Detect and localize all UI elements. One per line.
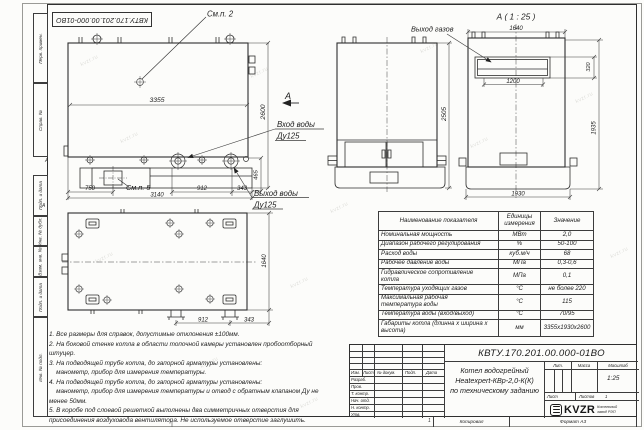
- note-line: манометр, прибор для измерения температу…: [49, 368, 341, 378]
- label-water-outlet: Выход воды: [254, 189, 298, 198]
- note-line: штуцер.: [49, 349, 341, 359]
- dim-detail-height: 1935: [592, 121, 598, 135]
- scale-label: Масштаб: [597, 363, 639, 368]
- param-name: Номинальная мощность: [379, 231, 499, 241]
- detail-a-title: А ( 1 : 25 ): [496, 12, 536, 22]
- param-value: 3355х1930х2600: [541, 320, 594, 337]
- bottom-flanges: [85, 152, 249, 170]
- table-row: Габариты котла (длинна х ширина х высота…: [379, 320, 594, 337]
- param-units: МПа: [499, 259, 541, 269]
- technical-notes: 1. Все размеры для справок, допустимые о…: [49, 330, 341, 425]
- param-name: Рабочее давление воды: [379, 259, 499, 269]
- drawing-sheet: kvzr.ru kvzr.ru kvzr.ru kvzr.ru kvzr.ru …: [0, 0, 644, 430]
- note-line: 1. Все размеры для справок, допустимые о…: [49, 330, 341, 340]
- sig-row-utv: Утв.: [351, 412, 361, 417]
- param-value: 2,0: [541, 231, 594, 241]
- table-row: Температура уходящих газов°Сне более 220: [379, 285, 594, 295]
- param-units: °С: [499, 294, 541, 310]
- detail-a-view: [459, 24, 577, 198]
- mass-label: Масса: [571, 363, 597, 368]
- dim-top-343: 343: [244, 318, 255, 324]
- mount-points: [74, 218, 215, 305]
- dim-base-length: 3140: [150, 193, 164, 199]
- dim-front-912: 912: [197, 186, 208, 192]
- param-name: Температура уходящих газов: [379, 285, 499, 295]
- kvzr-logo-subtext: Котельный завод РЭП: [597, 405, 617, 414]
- label-see-p2: См.п. 2: [207, 10, 234, 19]
- dim-front-height: 2600: [260, 104, 267, 120]
- doc-code-cell: КВТУ.170.201.00.000-01ВО: [444, 345, 638, 362]
- copied-cell: Копировал: [433, 417, 510, 427]
- dim-outlet-height: 465: [254, 169, 260, 179]
- note-line: присоединения воздуховода вентилятора. Н…: [49, 416, 341, 426]
- sig-header-list: Лист: [363, 370, 374, 375]
- sig-row-nkontr: Н. контр.: [351, 405, 370, 410]
- param-value: 115: [541, 294, 594, 310]
- param-value: не более 220: [541, 285, 594, 295]
- param-units: °С: [499, 285, 541, 295]
- kvzr-logo-text: KVZR: [564, 404, 595, 416]
- lit-label: Лит.: [545, 363, 571, 368]
- param-value: 68: [541, 250, 594, 260]
- product-name-line1: Котел водогрейный: [460, 366, 528, 375]
- sig-row-tkontr: Т. контр.: [351, 391, 369, 396]
- product-name-line2: Heatexpert-КВр-2,0-К(К): [455, 376, 534, 385]
- detail-a-dimensions: [447, 29, 603, 200]
- note-line: 2. На боковой стенке котла в области топ…: [49, 340, 341, 350]
- title-block: КВТУ.170.201.00.000-01ВО Изм. Лист № док…: [349, 344, 637, 417]
- zone-mark-bottom: 1: [428, 418, 431, 424]
- company-logo: KVZR Котельный завод РЭП: [547, 401, 638, 418]
- kvzr-logo-icon: [550, 404, 562, 416]
- col-header-name: Наименование показателя: [379, 212, 499, 231]
- format-cell: Формат А3: [510, 417, 637, 427]
- logo-sub-line2: завод РЭП: [597, 410, 617, 415]
- param-units: МПа: [499, 269, 541, 285]
- label-water-inlet-dn: Ду125: [276, 132, 300, 141]
- scale-value: 1:25: [607, 375, 619, 382]
- section-mark-a: А: [284, 91, 291, 101]
- dim-front-length: 3355: [149, 97, 164, 104]
- table-row: Диапазон рабочего регулирования%50-100: [379, 240, 594, 250]
- logo-sub-line1: Котельный: [597, 405, 617, 410]
- dim-duct-width: 1200: [506, 79, 520, 85]
- label-water-outlet-dn: Ду125: [253, 200, 277, 209]
- sheets-label: Листов: [579, 394, 603, 399]
- sig-row-prov: Пров.: [351, 384, 362, 389]
- param-units: °С: [499, 310, 541, 320]
- product-name-line3: по техническому заданию: [450, 386, 539, 395]
- param-value: 0,3-0,6: [541, 259, 594, 269]
- dim-side-height: 2505: [441, 107, 448, 123]
- table-row: Гидравлическое сопротивление котлаМПа0,1: [379, 269, 594, 285]
- sheet-label: Лист: [547, 394, 567, 399]
- param-name: Диапазон рабочего регулирования: [379, 240, 499, 250]
- label-water-inlet: Вход воды: [277, 120, 315, 129]
- param-units: МВт: [499, 231, 541, 241]
- note-line: манометр, прибор для измерения температу…: [49, 387, 341, 397]
- sig-header-data: Дата: [426, 370, 437, 375]
- dim-top-width: 1640: [262, 254, 268, 268]
- parameters-table: Наименование показателя Единицы измерени…: [378, 211, 593, 337]
- param-name: Расход воды: [379, 250, 499, 260]
- table-row: Температура воды (вход/выход)°С70/95: [379, 310, 594, 320]
- label-see-p5: См.п. 5: [126, 183, 151, 192]
- label-gas-outlet: Выход газов: [411, 25, 454, 34]
- table-row: Рабочее давление водыМПа0,3-0,6: [379, 259, 594, 269]
- format-label: Формат А3: [560, 420, 586, 425]
- table-row: Расход водыкуб.м/ч68: [379, 250, 594, 260]
- dim-top-912: 912: [198, 318, 209, 324]
- col-header-units: Единицы измерения: [499, 212, 541, 231]
- table-row: Номинальная мощностьМВт2,0: [379, 231, 594, 241]
- param-name: Максимальная рабочая температура воды: [379, 294, 499, 310]
- param-value: 0,1: [541, 269, 594, 285]
- signature-table: Изм. Лист № докум. Подп. Дата Разраб. Пр…: [350, 345, 444, 418]
- param-units: куб.м/ч: [499, 250, 541, 260]
- side-view: [328, 37, 446, 192]
- param-name: Температура воды (вход/выход): [379, 310, 499, 320]
- param-name: Габариты котла (длинна х ширина х высота…: [379, 320, 499, 337]
- note-line: 4. На подводящей трубе котла, до запорно…: [49, 378, 341, 388]
- param-units: %: [499, 240, 541, 250]
- param-value: 70/95: [541, 310, 594, 320]
- dim-detail-base: 1930: [511, 192, 525, 198]
- dim-base-left: 750: [85, 186, 96, 192]
- top-view: [62, 209, 256, 320]
- sig-header-dokum: № докум.: [377, 370, 395, 375]
- sig-header-podp: Подп.: [405, 370, 416, 375]
- dim-front-343: 343: [237, 186, 248, 192]
- dim-duct-height: 320: [586, 61, 592, 71]
- note-line: менее 50мм.: [49, 397, 341, 407]
- param-units: мм: [499, 320, 541, 337]
- sig-row-razrab: Разраб.: [351, 377, 366, 382]
- table-row: Максимальная рабочая температура воды°С1…: [379, 294, 594, 310]
- dim-detail-width-top: 1640: [509, 26, 523, 32]
- param-name: Гидравлическое сопротивление котла: [379, 269, 499, 285]
- col-header-value: Значение: [541, 212, 594, 231]
- product-name-cell: Котел водогрейный Heatexpert-КВр-2,0-К(К…: [444, 362, 544, 418]
- sig-row-nachotd: Нач. отд.: [351, 398, 370, 403]
- doc-code: КВТУ.170.201.00.000-01ВО: [478, 348, 605, 359]
- sheets-count: 1: [605, 394, 615, 399]
- note-line: 3. На подводящей трубе котла, до запорно…: [49, 359, 341, 369]
- param-value: 50-100: [541, 240, 594, 250]
- copied-label: Копировал: [460, 420, 484, 425]
- note-line: 5. В коробе под слоевой решеткой выполне…: [49, 406, 341, 416]
- sig-header-izm: Изм.: [351, 370, 360, 375]
- top-view-dimensions: [174, 211, 273, 326]
- lifting-slots: [86, 219, 236, 304]
